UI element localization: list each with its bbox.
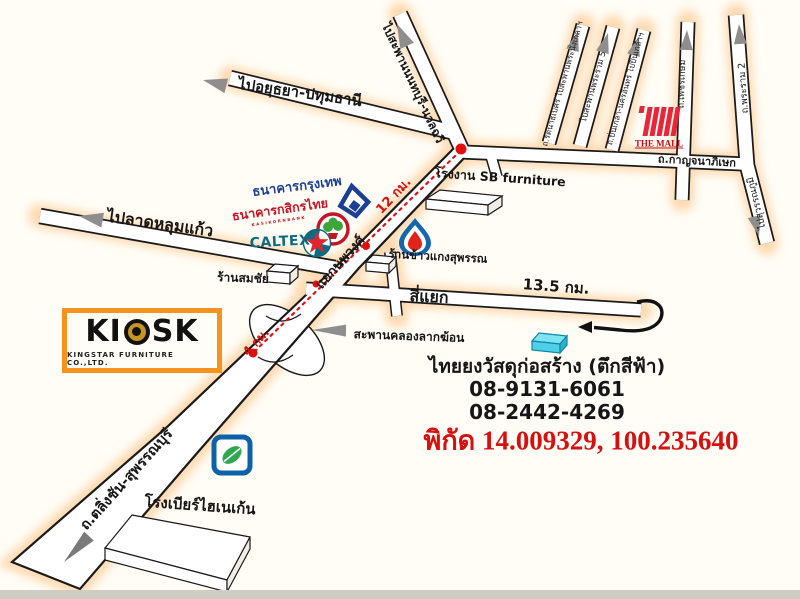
brand-label-the-mall: THE MALL [635, 140, 683, 149]
junction-label-crossroads: สี่แยก [409, 288, 449, 306]
somchai-shop-building [267, 264, 298, 284]
destination-phone-2: 08-2442-4269 [469, 402, 625, 422]
place-label-somchai: ร้านสมชัย [217, 271, 269, 285]
kiosk-text-right: SK [152, 314, 199, 349]
kiosk-wordmark: KI SK [85, 314, 198, 349]
kiosk-company-line: KINGSTAR FURNITURE CO.,LTD. [67, 351, 217, 367]
destination-coordinates: พิกัด 14.009329, 100.235640 [424, 428, 739, 455]
destination-name: ไทยยงวัสดุก่อสร้าง (ตึกสีฟ้า) [429, 358, 665, 377]
brand-label-caltex: CALTEX [249, 233, 310, 250]
kiosk-target-o-icon [124, 319, 150, 345]
kiosk-text-left: KI [85, 314, 121, 349]
heineken-brewery-building [105, 515, 250, 592]
road-label-phetkasem: ถ.เพชรเกษม [678, 60, 689, 109]
kiosk-kingstar-logo: KI SK KINGSTAR FURNITURE CO.,LTD. [62, 308, 222, 373]
bangchak-logo-icon [214, 437, 250, 473]
destination-blue-building [532, 333, 567, 353]
bangkok-bank-logo-icon [338, 184, 370, 218]
sb-factory-building [426, 190, 502, 215]
distance-label-13-5km: 13.5 กม. [522, 277, 590, 297]
bottom-window-edge [0, 590, 800, 599]
direction-map: ไปอยุธยา-ปทุมธานี ไปสะพานนนทบุรี-นวลฉวี … [0, 0, 800, 599]
junction-label-lak-khon-bridge: สะพานคลองลากฆ้อน [353, 328, 464, 344]
destination-phone-1: 08-9131-6061 [469, 379, 625, 399]
route-dot-junction [456, 144, 467, 155]
